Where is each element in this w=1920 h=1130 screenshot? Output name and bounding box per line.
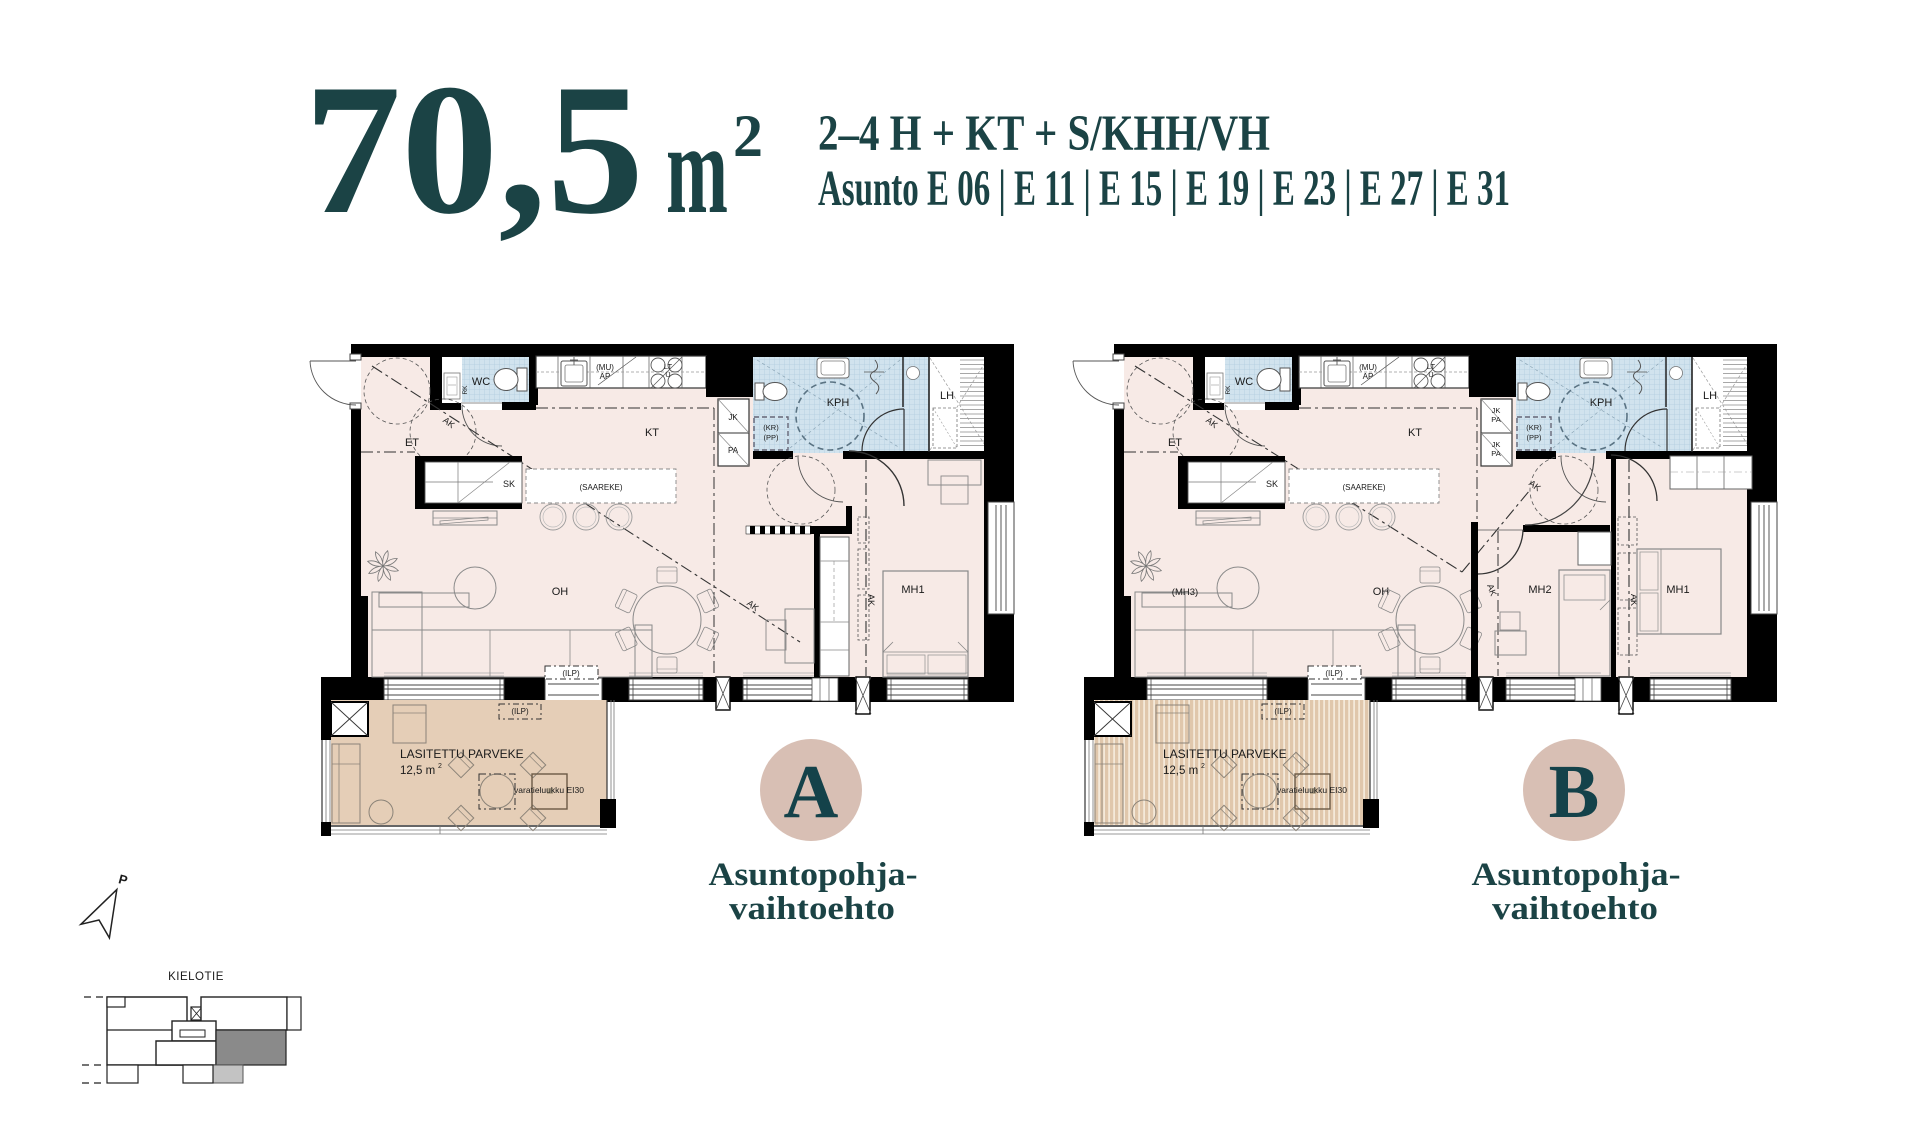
svg-text:JK: JK bbox=[728, 413, 738, 422]
svg-text:SK: SK bbox=[1266, 479, 1278, 489]
svg-text:AK: AK bbox=[866, 594, 876, 606]
svg-text:WC: WC bbox=[472, 376, 490, 388]
svg-text:JK: JK bbox=[1492, 440, 1501, 449]
svg-text:KT: KT bbox=[1408, 427, 1422, 439]
svg-text:12,5 m: 12,5 m bbox=[1163, 765, 1198, 777]
svg-text:(SAAREKE): (SAAREKE) bbox=[579, 483, 622, 492]
svg-text:(SAAREKE): (SAAREKE) bbox=[1342, 483, 1385, 492]
svg-text:Asunto E 06 | E 11 | E 15 | E: Asunto E 06 | E 11 | E 15 | E 19 | E 23 … bbox=[818, 161, 1510, 217]
svg-text:KPH: KPH bbox=[827, 397, 850, 409]
svg-text:(MH3): (MH3) bbox=[1172, 587, 1198, 598]
svg-text:vaihtoehto: vaihtoehto bbox=[729, 891, 895, 927]
svg-text:(PP): (PP) bbox=[1527, 433, 1543, 442]
svg-text:70,5: 70,5 bbox=[304, 46, 644, 253]
svg-text:m: m bbox=[666, 97, 728, 240]
svg-text:RK: RK bbox=[1225, 385, 1232, 395]
svg-text:PA: PA bbox=[728, 446, 739, 455]
svg-text:KIELOTIE: KIELOTIE bbox=[168, 971, 224, 983]
svg-text:B: B bbox=[1549, 750, 1600, 834]
svg-text:(MU): (MU) bbox=[1359, 363, 1377, 372]
svg-text:U: U bbox=[1428, 370, 1433, 379]
svg-text:Asuntopohja-: Asuntopohja- bbox=[709, 857, 918, 893]
svg-text:JK: JK bbox=[1492, 406, 1501, 415]
svg-text:KPH: KPH bbox=[1590, 397, 1613, 409]
svg-text:vaihtoehto: vaihtoehto bbox=[1492, 891, 1658, 927]
svg-text:2: 2 bbox=[1201, 763, 1205, 770]
svg-text:LASITETTU PARVEKE: LASITETTU PARVEKE bbox=[1163, 747, 1287, 761]
svg-text:Asuntopohja-: Asuntopohja- bbox=[1472, 857, 1681, 893]
svg-text:U: U bbox=[665, 370, 670, 379]
svg-text:2–4 H + KT + S/KHH/VH: 2–4 H + KT + S/KHH/VH bbox=[818, 106, 1270, 162]
svg-text:(MU): (MU) bbox=[596, 363, 614, 372]
svg-text:(ILP): (ILP) bbox=[511, 707, 529, 716]
svg-text:2: 2 bbox=[733, 103, 763, 169]
svg-text:MH1: MH1 bbox=[1666, 584, 1689, 596]
svg-text:varatieluukku EI30: varatieluukku EI30 bbox=[1277, 785, 1347, 795]
svg-text:(KR): (KR) bbox=[1526, 423, 1542, 432]
svg-text:varatieluukku EI30: varatieluukku EI30 bbox=[514, 785, 584, 795]
svg-text:ET: ET bbox=[1168, 437, 1182, 449]
svg-text:ET: ET bbox=[405, 437, 419, 449]
svg-text:LASITETTU PARVEKE: LASITETTU PARVEKE bbox=[400, 747, 524, 761]
svg-text:RK: RK bbox=[462, 385, 469, 395]
svg-text:PA: PA bbox=[1491, 449, 1500, 458]
svg-text:A: A bbox=[784, 750, 839, 834]
svg-text:LH: LH bbox=[940, 390, 954, 402]
svg-text:MH1: MH1 bbox=[901, 584, 924, 596]
svg-text:(PP): (PP) bbox=[764, 433, 780, 442]
svg-text:MH2: MH2 bbox=[1528, 584, 1551, 596]
svg-text:(KR): (KR) bbox=[763, 423, 779, 432]
svg-text:(ILP): (ILP) bbox=[562, 669, 580, 678]
svg-text:WC: WC bbox=[1235, 376, 1253, 388]
svg-text:LH: LH bbox=[1703, 390, 1717, 402]
svg-text:OH: OH bbox=[552, 586, 569, 598]
svg-text:SK: SK bbox=[503, 479, 515, 489]
svg-text:KT: KT bbox=[645, 427, 659, 439]
svg-text:(ILP): (ILP) bbox=[1325, 669, 1343, 678]
svg-text:PA: PA bbox=[1491, 415, 1500, 424]
svg-text:(ILP): (ILP) bbox=[1274, 707, 1292, 716]
svg-text:12,5 m: 12,5 m bbox=[400, 765, 435, 777]
svg-text:2: 2 bbox=[438, 763, 442, 770]
